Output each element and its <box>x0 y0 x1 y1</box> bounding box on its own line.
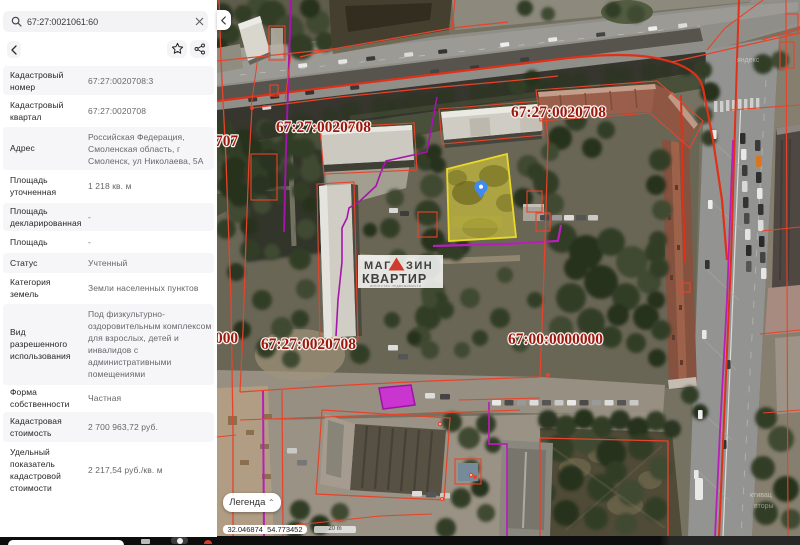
svg-text:вторы: вторы <box>754 503 774 510</box>
svg-text:67:27:0020708: 67:27:0020708 <box>511 104 606 121</box>
svg-text:ЗИН: ЗИН <box>406 260 433 272</box>
svg-text:агентство недвижимости: агентство недвижимости <box>370 284 421 288</box>
svg-text:67:27:0020708: 67:27:0020708 <box>276 119 371 136</box>
svg-text:яндекс: яндекс <box>737 57 760 64</box>
svg-text:МАГ: МАГ <box>364 260 392 272</box>
svg-text:000: 000 <box>217 330 238 347</box>
svg-text:67:27:0020708: 67:27:0020708 <box>261 336 356 353</box>
svg-text:ктивац: ктивац <box>750 492 772 499</box>
svg-text:67:00:0000000: 67:00:0000000 <box>508 331 603 348</box>
svg-text:707: 707 <box>217 133 238 150</box>
